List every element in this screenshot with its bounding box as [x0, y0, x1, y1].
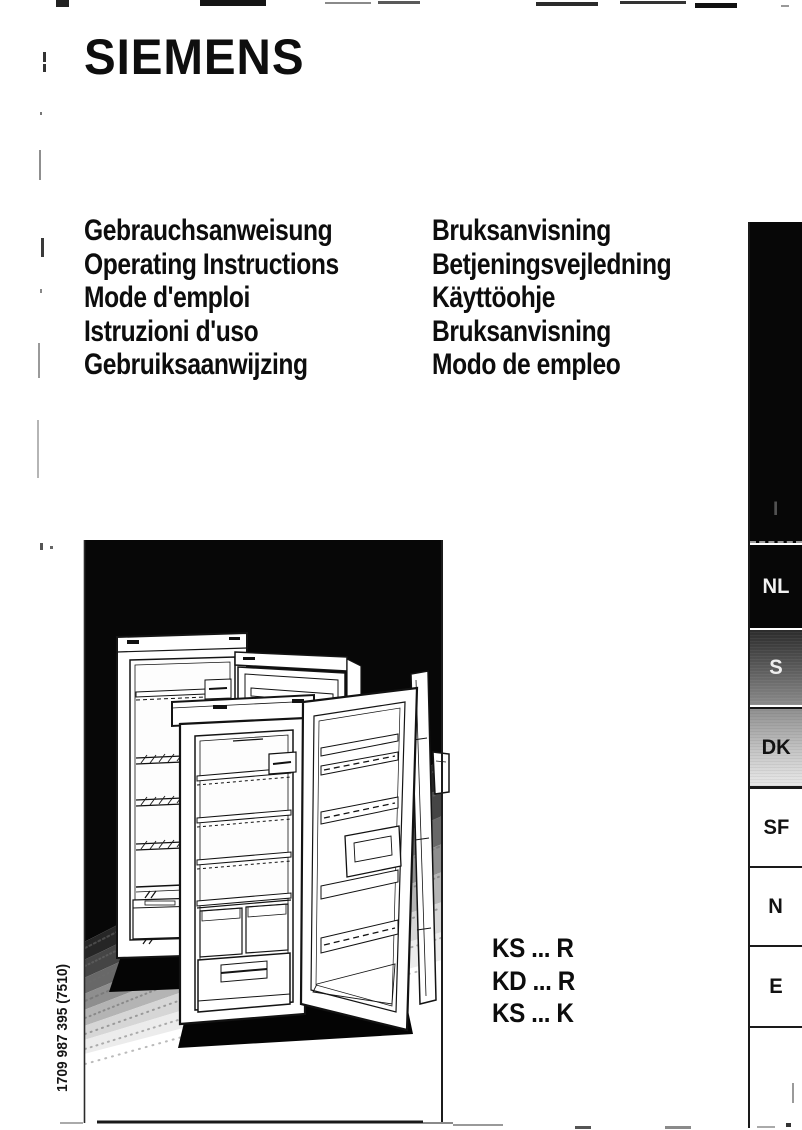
language-tab-label: E	[769, 975, 782, 999]
scan-artifact	[50, 546, 53, 549]
language-tab-sf: SF	[750, 786, 802, 866]
instruction-titles-right: Bruksanvisning Betjeningsvejledning Käyt…	[432, 214, 724, 382]
instruction-titles-left: Gebrauchsanweisung Operating Instruction…	[84, 214, 395, 382]
model-codes: KS ... R KD ... R KS ... K	[492, 932, 584, 1030]
scan-artifact	[43, 52, 46, 62]
scan-artifact	[665, 1126, 691, 1129]
tab-index-spine	[748, 222, 750, 1128]
language-tab-label: NL	[763, 575, 790, 599]
title-dutch: Gebruiksaanwijzing	[84, 348, 339, 382]
scan-artifact	[786, 1123, 791, 1127]
scan-artifact	[200, 0, 266, 6]
title-danish: Betjeningsvejledning	[432, 248, 671, 282]
model-code: KS ... K	[492, 997, 575, 1030]
language-tab-nl: NL	[750, 545, 802, 628]
scan-artifact	[378, 1, 420, 4]
title-german: Gebrauchsanweisung	[84, 214, 339, 248]
title-italian: Istruzioni d'uso	[84, 315, 339, 349]
language-tab-i: I	[750, 222, 802, 543]
scan-artifact	[38, 343, 40, 378]
model-code: KS ... R	[492, 932, 575, 965]
language-tab-label: I	[773, 499, 778, 521]
title-french: Mode d'emploi	[84, 281, 339, 315]
scan-artifact	[536, 2, 598, 6]
scan-artifact	[43, 64, 46, 72]
scan-artifact	[37, 420, 39, 478]
title-swedish: Bruksanvisning	[432, 214, 671, 248]
scan-artifact	[56, 0, 69, 7]
scan-artifact	[39, 150, 41, 180]
refrigerator-illustration	[83, 540, 453, 1125]
language-tab-s: S	[750, 630, 802, 705]
order-number: 1709 987 395 (7510)	[54, 964, 71, 1092]
language-tab-label: SF	[763, 816, 789, 840]
language-tab-label: S	[769, 656, 782, 680]
scan-artifact	[41, 238, 44, 257]
scan-artifact	[40, 112, 42, 115]
scan-artifact	[453, 1124, 503, 1126]
title-norwegian: Bruksanvisning	[432, 315, 671, 349]
scan-artifact	[695, 3, 737, 8]
scan-artifact	[757, 1126, 775, 1128]
language-tab-dk: DK	[750, 707, 802, 786]
language-tab-e: E	[750, 945, 802, 1028]
siemens-logo: SIEMENS	[84, 28, 304, 86]
manual-cover-page: SIEMENS Gebrauchsanweisung Operating Ins…	[0, 0, 802, 1130]
scan-artifact	[40, 543, 43, 550]
language-tab-label: N	[769, 895, 784, 919]
scan-artifact	[781, 5, 789, 7]
model-code: KD ... R	[492, 965, 575, 998]
scan-artifact	[620, 1, 686, 4]
title-english: Operating Instructions	[84, 248, 339, 282]
scan-artifact	[325, 2, 371, 4]
scan-artifact	[792, 1083, 794, 1103]
language-tab-n: N	[750, 866, 802, 945]
scan-artifact	[575, 1126, 591, 1129]
scan-artifact	[40, 289, 42, 293]
tab-separator-line	[750, 541, 802, 543]
title-spanish: Modo de empleo	[432, 348, 671, 382]
language-tab-label: DK	[761, 736, 790, 760]
title-finnish: Käyttöohje	[432, 281, 671, 315]
